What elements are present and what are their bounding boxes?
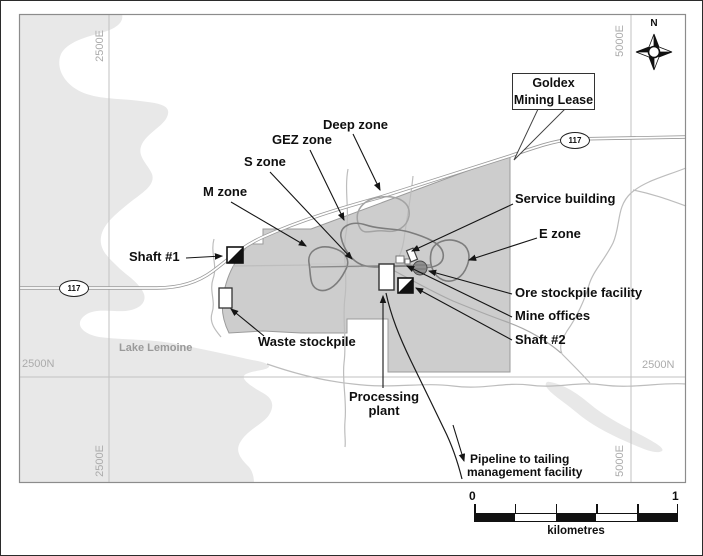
shaft-1-arrow xyxy=(186,256,222,258)
waste-stockpile-icon xyxy=(219,288,232,308)
mine-offices-label: Mine offices xyxy=(515,309,590,323)
highway-117-shield-west: 117 xyxy=(59,280,89,297)
deep-zone-arrow xyxy=(353,134,380,190)
gez-zone-label: GEZ zone xyxy=(272,133,332,147)
e-zone-label: E zone xyxy=(539,227,581,241)
s-zone-label: S zone xyxy=(244,155,286,169)
shaft-1-label: Shaft #1 xyxy=(129,250,180,264)
lease-callout-line1: Goldex xyxy=(532,75,574,91)
processing-plant-label: Processing plant xyxy=(346,390,422,417)
goldex-mine-map-figure: Deep zone GEZ zone S zone M zone Shaft #… xyxy=(0,0,703,556)
service-building-label: Service building xyxy=(515,192,615,206)
lease-callout-tail xyxy=(514,107,567,160)
deep-zone-label: Deep zone xyxy=(323,118,388,132)
m-zone-label: M zone xyxy=(203,185,247,199)
lake-lemoine-label: Lake Lemoine xyxy=(119,342,192,354)
grid-label-2500e-bottom: 2500E xyxy=(94,445,106,477)
scale-units-label: kilometres xyxy=(474,525,678,537)
goldex-mining-lease-callout: Goldex Mining Lease xyxy=(512,73,595,110)
highway-117-shield-east: 117 xyxy=(560,132,590,149)
north-compass-icon xyxy=(636,34,672,70)
shaft-2-label: Shaft #2 xyxy=(515,333,566,347)
scale-max-label: 1 xyxy=(672,489,679,503)
ore-stockpile-facility-label: Ore stockpile facility xyxy=(515,286,642,300)
waste-stockpile-label: Waste stockpile xyxy=(258,335,356,349)
grid-label-5000e-top: 5000E xyxy=(614,25,626,57)
processing-plant-icon xyxy=(379,264,394,290)
grid-label-2500n-left: 2500N xyxy=(22,358,54,370)
map-canvas xyxy=(1,1,703,556)
north-label: N xyxy=(648,18,660,29)
shaft-2-icon xyxy=(398,278,413,293)
scale-bar xyxy=(474,504,678,524)
gez-zone-arrow xyxy=(310,150,344,220)
grid-label-2500e-top: 2500E xyxy=(94,30,106,62)
lease-callout-line2: Mining Lease xyxy=(514,92,593,108)
pipeline-label-line1: Pipeline to tailing xyxy=(470,453,569,466)
shaft-1-icon xyxy=(227,247,243,263)
scale-min-label: 0 xyxy=(469,489,476,503)
pipeline-label-line2: management facility xyxy=(467,466,582,479)
grid-label-5000e-bottom: 5000E xyxy=(614,445,626,477)
grid-label-2500n-right: 2500N xyxy=(642,359,674,371)
